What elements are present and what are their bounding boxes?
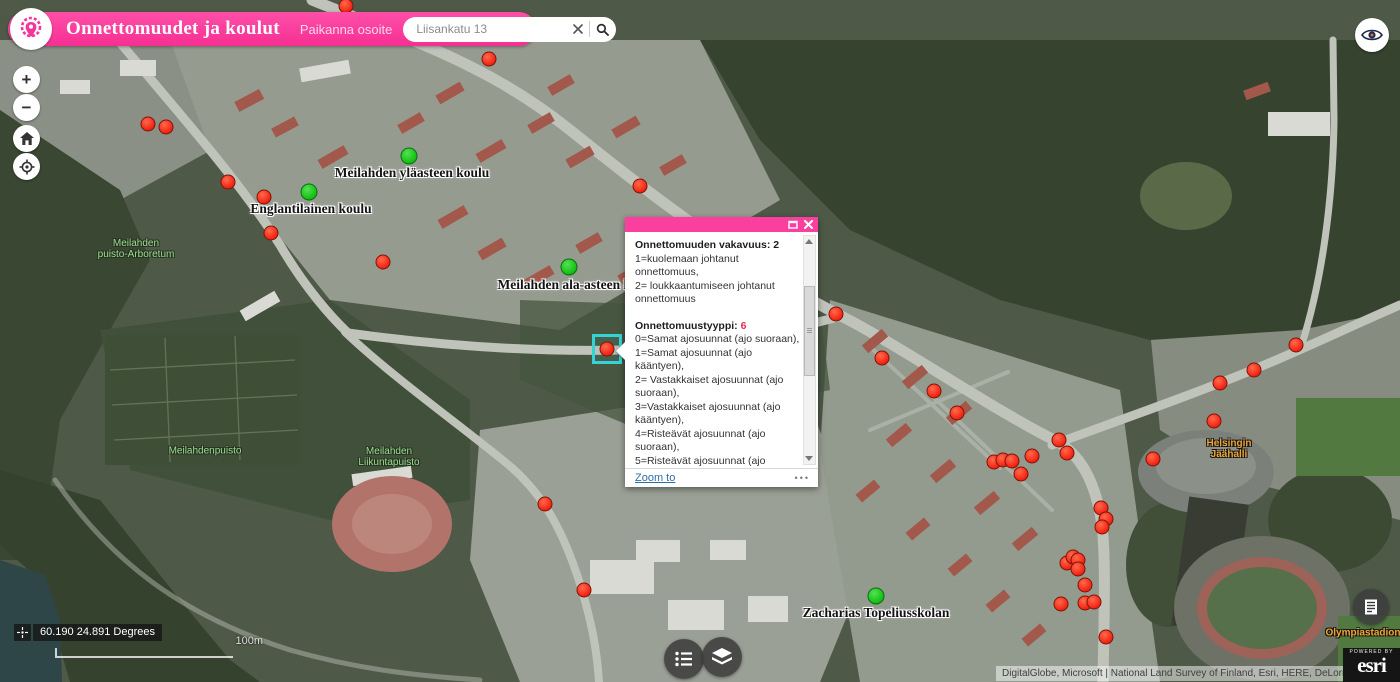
accident-dot[interactable] (1087, 595, 1102, 610)
school-dot[interactable] (301, 184, 318, 201)
accident-dot[interactable] (1014, 467, 1029, 482)
coordinate-readout: 60.190 24.891 Degrees (14, 624, 162, 641)
popup-section-title: Onnettomuustyyppi: 6 (635, 320, 801, 334)
accident-dot[interactable] (633, 179, 648, 194)
accident-dot[interactable] (257, 190, 272, 205)
school-dot[interactable] (561, 259, 578, 276)
app-logo (10, 8, 52, 50)
page-title: Onnettomuudet ja koulut (66, 18, 280, 40)
esri-logo: POWERED BY esri (1343, 648, 1400, 682)
scale-label: 100m (235, 635, 263, 647)
legend-button[interactable] (664, 639, 704, 679)
feature-popup: Onnettomuuden vakavuus: 21=kuolemaan joh… (625, 217, 818, 487)
layers-icon (712, 648, 732, 666)
popup-section-line: 3=Vastakkaiset ajosuunnat (ajo kääntyen)… (635, 401, 801, 428)
details-button[interactable] (1353, 589, 1389, 625)
home-icon (20, 132, 34, 145)
scrollbar-thumb[interactable] (804, 286, 815, 376)
accident-dot[interactable] (1213, 376, 1228, 391)
accident-dot[interactable] (221, 175, 236, 190)
accident-dot[interactable] (1025, 449, 1040, 464)
crosshair-target-icon (19, 159, 35, 175)
accident-dot[interactable] (875, 351, 890, 366)
esri-wordmark: esri (1343, 655, 1400, 675)
popup-section-value: 6 (741, 320, 747, 332)
popup-section-value: 2 (773, 239, 779, 251)
accident-dot[interactable] (927, 384, 942, 399)
plus-icon: + (22, 70, 32, 90)
home-button[interactable] (13, 125, 40, 152)
popup-section-line: 5=Risteävät ajosuunnat (ajo kääntyen), (635, 455, 801, 469)
address-search (403, 17, 616, 42)
school-dot[interactable] (868, 588, 885, 605)
accident-dot[interactable] (1054, 597, 1069, 612)
coordinate-value: 60.190 24.891 Degrees (33, 624, 162, 641)
map-application: Meilahden yläasteen kouluEnglantilainen … (0, 0, 1400, 682)
school-dot[interactable] (401, 148, 418, 165)
zoom-out-button[interactable]: − (13, 94, 40, 121)
layers-button[interactable] (702, 637, 742, 677)
zoom-in-button[interactable]: + (13, 66, 40, 93)
popup-section-line: 4=Risteävät ajosuunnat (ajo suoraan), (635, 428, 801, 455)
accident-dot[interactable] (1060, 446, 1075, 461)
accident-dot[interactable] (141, 117, 156, 132)
accident-dot[interactable] (1146, 452, 1161, 467)
app-header: Onnettomuudet ja koulut Paikanna osoite (8, 12, 536, 46)
popup-section-line: 1=Samat ajosuunnat (ajo kääntyen), (635, 347, 801, 374)
popup-titlebar (625, 217, 818, 232)
map-pin-icon (18, 16, 44, 42)
accident-dot[interactable] (1247, 363, 1262, 378)
accident-dot[interactable] (1207, 414, 1222, 429)
accident-dot[interactable] (1099, 630, 1114, 645)
popup-section-title: Onnettomuuden vakavuus: 2 (635, 239, 801, 253)
popup-scrollbar[interactable] (803, 235, 816, 465)
popup-section: Onnettomuuden vakavuus: 21=kuolemaan joh… (635, 239, 801, 307)
search-icon[interactable] (596, 23, 609, 36)
popup-section-line: 0=Samat ajosuunnat (ajo suoraan), (635, 333, 801, 347)
accident-dot[interactable] (538, 497, 553, 512)
map-attribution: DigitalGlobe, Microsoft | National Land … (996, 666, 1343, 681)
popup-section: Onnettomuustyyppi: 60=Samat ajosuunnat (… (635, 320, 801, 469)
clear-search-icon[interactable] (573, 24, 583, 34)
accident-dot[interactable] (159, 120, 174, 135)
accident-dot[interactable] (1095, 520, 1110, 535)
popup-content: Onnettomuuden vakavuus: 21=kuolemaan joh… (625, 232, 818, 468)
accident-dot[interactable] (482, 52, 497, 67)
scale-bar: 100m (55, 640, 231, 658)
minus-icon: − (22, 98, 32, 118)
accident-dot[interactable] (1289, 338, 1304, 353)
accident-dot[interactable] (1071, 562, 1086, 577)
selected-accident-dot[interactable] (600, 342, 615, 357)
accident-dot[interactable] (264, 226, 279, 241)
scroll-up-arrow-icon[interactable] (805, 239, 813, 244)
scroll-down-arrow-icon[interactable] (805, 456, 813, 461)
accident-dot[interactable] (376, 255, 391, 270)
scale-line (55, 648, 233, 658)
locate-me-button[interactable] (13, 153, 40, 180)
maximize-icon[interactable] (788, 220, 798, 229)
popup-pointer (616, 342, 625, 360)
zoom-to-link[interactable]: Zoom to (635, 472, 675, 484)
close-icon[interactable] (804, 220, 813, 229)
eye-icon (1361, 28, 1383, 42)
popup-footer: Zoom to ••• (625, 468, 818, 487)
legend-list-icon (675, 651, 693, 667)
popup-section-line: 2= loukkaantumiseen johtanut onnettomuus (635, 280, 801, 307)
locate-address-label: Paikanna osoite (300, 22, 393, 37)
accident-dot[interactable] (829, 307, 844, 322)
search-input[interactable] (414, 21, 573, 37)
accident-dot[interactable] (1078, 578, 1093, 593)
popup-text: Onnettomuuden vakavuus: 21=kuolemaan joh… (635, 239, 801, 468)
popup-section-line: 1=kuolemaan johtanut onnettomuus, (635, 253, 801, 280)
coordinate-crosshair-icon[interactable] (14, 624, 31, 641)
popup-more-button[interactable]: ••• (795, 475, 810, 481)
visibility-toggle-button[interactable] (1355, 18, 1389, 52)
accident-dot[interactable] (577, 583, 592, 598)
document-icon (1363, 599, 1379, 615)
popup-section-line: 2= Vastakkaiset ajosuunnat (ajo suoraan)… (635, 374, 801, 401)
search-divider (589, 21, 590, 37)
accident-dot[interactable] (950, 406, 965, 421)
